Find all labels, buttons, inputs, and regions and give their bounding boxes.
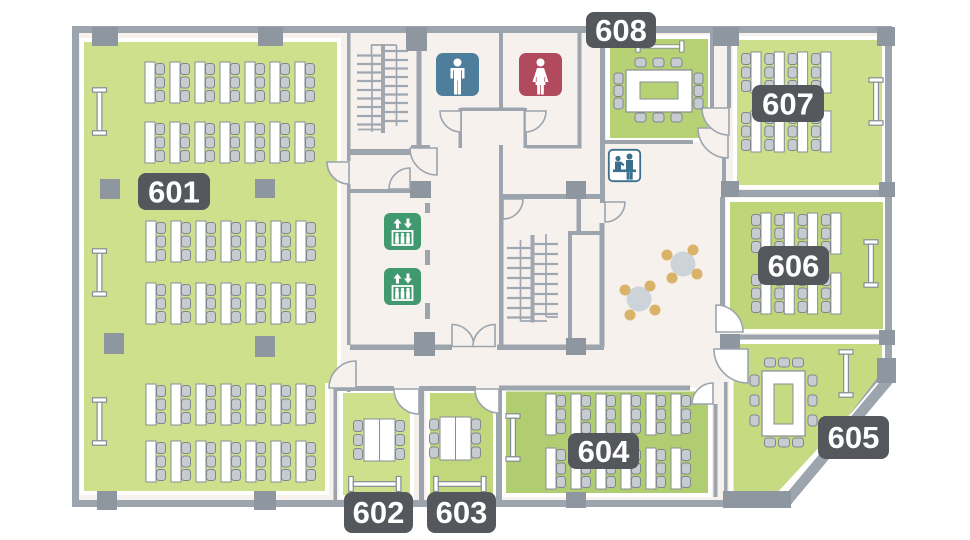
svg-text:608: 608 [595, 13, 647, 48]
svg-text:607: 607 [762, 87, 814, 122]
svg-text:604: 604 [578, 434, 630, 469]
svg-text:606: 606 [768, 249, 820, 284]
svg-text:603: 603 [436, 495, 488, 530]
svg-text:601: 601 [148, 175, 200, 210]
svg-text:605: 605 [828, 420, 880, 455]
svg-text:602: 602 [353, 495, 405, 530]
